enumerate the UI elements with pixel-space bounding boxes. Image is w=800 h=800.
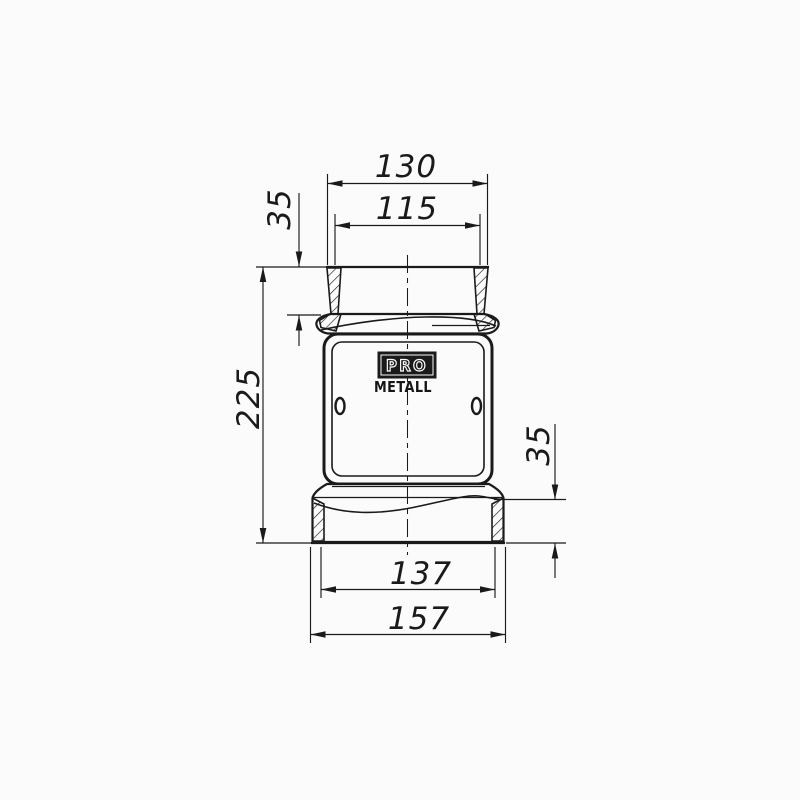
arrowhead-left — [311, 631, 326, 638]
dim-base-inner-label: 137 — [390, 556, 452, 592]
dim-neck-height-label: 35 — [262, 188, 298, 229]
dim-top-inner-label: 115 — [376, 191, 438, 227]
neck-right-wall — [474, 268, 488, 314]
arrowhead-down — [552, 485, 559, 500]
dimension-overall-height: 225 — [231, 267, 311, 543]
dim-top-outer-label: 130 — [375, 149, 437, 185]
arrowhead-right — [480, 586, 495, 593]
dim-overall-height-label: 225 — [231, 367, 267, 429]
arrowhead-up — [552, 544, 559, 559]
arrowhead-right — [491, 631, 506, 638]
arrowhead-left — [328, 180, 343, 187]
dimension-top-inner-width: 115 — [335, 191, 480, 265]
neck-left-wall — [327, 268, 341, 314]
dimension-base-height: 35 — [494, 424, 566, 578]
arrowhead-up — [296, 316, 303, 331]
arrowhead-right — [473, 180, 488, 187]
arrowhead-left — [321, 586, 336, 593]
base-right-wall — [492, 498, 504, 541]
arrowhead-down — [296, 252, 303, 267]
part-section-view: PRO METALL — [311, 255, 505, 555]
arrowhead-right — [465, 222, 480, 229]
dim-base-height-label: 35 — [521, 424, 557, 465]
logo-text-pro: PRO — [386, 356, 428, 375]
technical-drawing: PRO METALL 130 115 — [0, 0, 800, 800]
dim-base-outer-label: 157 — [388, 601, 450, 637]
arrowhead-down — [260, 528, 267, 543]
arrowhead-up — [260, 267, 267, 282]
logo-plate: PRO METALL — [374, 352, 436, 396]
drawing-page: PRO METALL 130 115 — [0, 0, 800, 800]
arrowhead-left — [335, 222, 350, 229]
logo-text-metall: METALL — [374, 378, 432, 396]
